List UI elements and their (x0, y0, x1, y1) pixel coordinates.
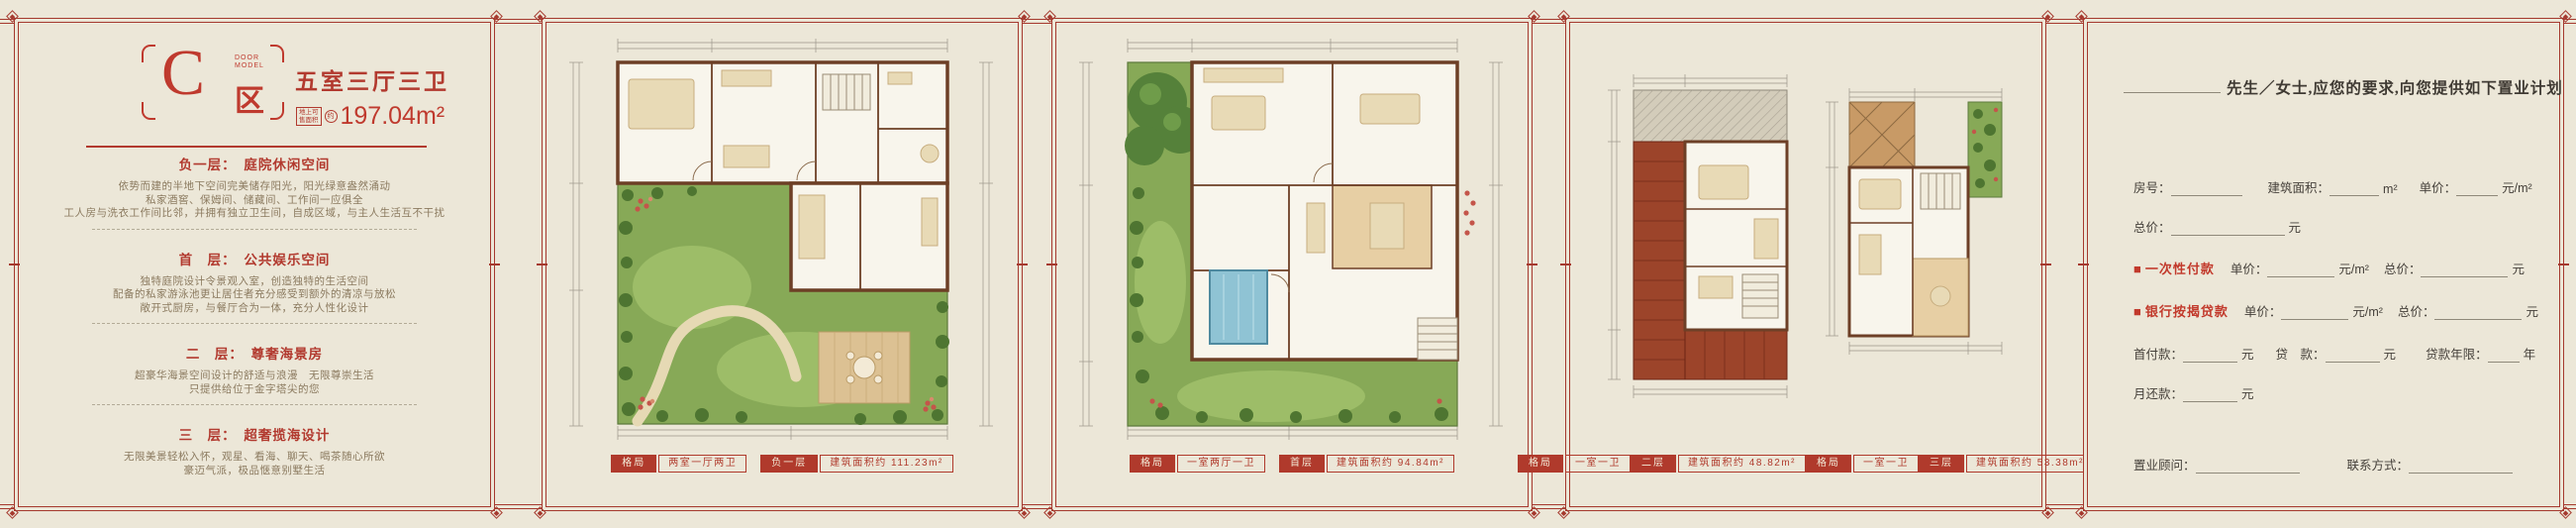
consultant-label: 置业顾问： (2133, 455, 2196, 474)
legend-key-badge: 三层 (1919, 455, 1964, 473)
corner-ornament-icon (490, 10, 503, 23)
yuan-unit: 元 (2241, 383, 2254, 402)
red-square-bullet-icon: ■ (2133, 262, 2142, 276)
zone-logo-subtext-line2: MODEL (235, 62, 264, 70)
year-unit: 年 (2524, 344, 2536, 363)
name-blank-line (2124, 77, 2221, 93)
blank-line (2281, 306, 2348, 320)
legend-value: 一室两厅一卫 (1177, 455, 1265, 473)
area-row: 地上可 售面积 约 197.04m² (296, 102, 445, 131)
legend-key-badge: 格局 (1518, 455, 1563, 473)
legend-key-badge: 二层 (1631, 455, 1676, 473)
total-price-label: 总价： (2133, 217, 2171, 236)
corner-ornament-icon (2041, 10, 2054, 23)
edge-tick-icon (2558, 264, 2569, 265)
loan-label: 贷 款： (2276, 344, 2326, 363)
zone-logo-subtext: DOOR MODEL (235, 54, 264, 70)
dashed-separator (92, 323, 418, 324)
room-no-label: 房号： (2133, 177, 2171, 196)
paragraph-line: 豪迈气派，极品惬意别墅生活 (35, 465, 474, 478)
total-price-label: 总价： (2384, 259, 2422, 277)
blank-line (2267, 264, 2334, 277)
section-heading: 首 层： 公共娱乐空间 (35, 253, 474, 267)
paragraph-line: 无限美景轻松入怀，观星、看海、聊天、喝茶随心所欲 (35, 451, 474, 465)
zone-letter: C (161, 41, 205, 106)
form-title-text: 先生／女士,应您的要求,向您提供如下置业计划 (2227, 80, 2563, 97)
section-paragraph: 依势而建的半地下空间完美储存阳光，阳光绿意盎然涌动 私家酒窖、保姆间、储藏间、工… (35, 180, 474, 221)
build-area-label: 建筑面积： (2268, 177, 2330, 196)
corner-ornament-icon (1043, 10, 1056, 23)
section-paragraph: 无限美景轻松入怀，观星、看海、聊天、喝茶随心所欲 豪迈气派，极品惬意别墅生活 (35, 451, 474, 477)
paragraph-line: 独特庭院设计令景观入室，创造独特的生活空间 (35, 275, 474, 289)
unit-price-label: 单价： (2230, 259, 2268, 277)
edge-tick-icon (2040, 264, 2051, 265)
paragraph-line: 敞开式厨房，与餐厅合为一体，充分人性化设计 (35, 302, 474, 316)
form-row-mortgage: ■银行按揭贷款 单价： 元/m² 总价： 元 (2133, 301, 2538, 320)
dashed-separator (92, 229, 418, 230)
panel-basement-plan: 格局 两室一厅两卫 负一层 建筑面积约 111.23m² (542, 18, 1023, 511)
corner-ornament-icon (534, 10, 546, 23)
corner-ornament-icon (1557, 10, 1570, 23)
area-tag: 地上可 售面积 (296, 107, 322, 126)
edge-tick-icon (1046, 264, 1057, 265)
contact-label: 联系方式： (2347, 455, 2410, 474)
total-price-label: 总价： (2398, 301, 2435, 320)
yuan-unit: 元 (2384, 344, 2397, 363)
legend-value: 一室一卫 (1853, 455, 1919, 473)
legend-key-badge: 首层 (1279, 455, 1325, 473)
first-floor-floorplan (1073, 35, 1509, 443)
second-floor-floorplan (1604, 70, 1807, 402)
paragraph-line: 只提供给位于金字塔尖的您 (35, 383, 474, 397)
blank-line (2326, 349, 2380, 363)
legend-value: 建筑面积约 111.23m² (820, 455, 953, 473)
blank-line (2183, 388, 2237, 402)
left-bracket-icon (142, 45, 155, 120)
loan-term-label: 贷款年限： (2426, 344, 2488, 363)
yuan-unit: 元 (2289, 217, 2302, 236)
area-tag-line1: 地上可 (299, 109, 319, 117)
form-row-loan: 首付款： 元 贷 款： 元 贷款年限： 年 (2133, 344, 2535, 363)
edge-tick-icon (489, 264, 500, 265)
legend-key-badge: 负一层 (760, 455, 818, 473)
corner-ornament-icon (1528, 10, 1540, 23)
panel-purchase-form: 先生／女士,应您的要求,向您提供如下置业计划 房号： 建筑面积： m² 单价： … (2083, 18, 2564, 511)
legend-value: 建筑面积约 48.82m² (1678, 455, 1806, 473)
section-heading: 负一层： 庭院休闲空间 (35, 158, 474, 172)
edge-tick-icon (1560, 264, 1571, 265)
legend-value: 一室一卫 (1565, 455, 1631, 473)
yuan-unit: 元 (2241, 344, 2254, 363)
third-floor-floorplan (1822, 84, 2020, 381)
form-title: 先生／女士,应您的要求,向您提供如下置业计划 (2124, 76, 2563, 98)
form-row-basic: 房号： 建筑面积： m² 单价： 元/m² (2133, 177, 2532, 196)
paragraph-line: 私家酒窖、保姆间、储藏间、工作间一应俱全 (35, 194, 474, 208)
legend-value: 建筑面积约 53.38m² (1966, 455, 2094, 473)
panel-upper-floor-plans: 格局 一室一卫 二层 建筑面积约 48.82m² 格局 一室一卫 三层 建筑面积… (1565, 18, 2046, 511)
zone-character: 区 (235, 76, 264, 120)
corner-ornament-icon (6, 10, 19, 23)
edge-tick-icon (9, 264, 20, 265)
edge-tick-icon (1017, 264, 1028, 265)
floor-descriptions: 负一层： 庭院休闲空间 依势而建的半地下空间完美储存阳光，阳光绿意盎然涌动 私家… (35, 158, 474, 477)
legend-value: 建筑面积约 94.84m² (1327, 455, 1454, 473)
form-row-total: 总价： 元 (2133, 217, 2301, 236)
section-basement: 负一层： 庭院休闲空间 依势而建的半地下空间完美储存阳光，阳光绿意盎然涌动 私家… (35, 158, 474, 230)
unit-price-label: 单价： (2244, 301, 2282, 320)
corner-ornament-icon (2559, 10, 2572, 23)
dashed-separator (92, 404, 418, 405)
legend-key-badge: 格局 (611, 455, 656, 473)
paragraph-line: 依势而建的半地下空间完美储存阳光，阳光绿意盎然涌动 (35, 180, 474, 194)
blank-line (2171, 222, 2285, 236)
blank-line (2456, 182, 2498, 196)
first-floor-legend: 格局 一室两厅一卫 首层 建筑面积约 94.84m² (1052, 455, 1532, 473)
section-paragraph: 超豪华海景空间设计的舒适与浪漫 无限尊崇生活 只提供给位于金字塔尖的您 (35, 370, 474, 396)
paragraph-line: 超豪华海景空间设计的舒适与浪漫 无限尊崇生活 (35, 370, 474, 383)
section-heading: 三 层： 超奢揽海设计 (35, 428, 474, 443)
corner-ornament-icon (2075, 10, 2088, 23)
zone-logo-subtext-line1: DOOR (235, 54, 264, 62)
blank-line (2488, 349, 2520, 363)
blank-line (2196, 460, 2300, 474)
paragraph-line: 工人房与洗衣工作间比邻，并拥有独立卫生间，自成区域，与主人生活互不干扰 (35, 207, 474, 221)
blank-line (2409, 460, 2513, 474)
right-bracket-icon (270, 45, 284, 120)
section-heading: 二 层： 尊奢海景房 (35, 347, 474, 362)
one-time-label: 一次性付款 (2145, 262, 2215, 276)
legend-value: 两室一厅两卫 (658, 455, 746, 473)
blank-line (2434, 306, 2522, 320)
red-square-bullet-icon: ■ (2133, 304, 2142, 319)
form-row-monthly: 月还款： 元 (2133, 383, 2254, 402)
unit-price-label: 单价： (2420, 177, 2457, 196)
yuan-per-sqm-unit: 元/m² (2338, 259, 2369, 277)
brochure-sheet: C DOOR MODEL 区 五室三厅三卫 地上可 售面积 约 197.04m²… (0, 0, 2576, 528)
form-row-consultant: 置业顾问： 联系方式： (2133, 455, 2513, 474)
mortgage-option: ■银行按揭贷款 (2133, 301, 2229, 320)
blank-line (2329, 182, 2379, 196)
corner-ornament-icon (1018, 10, 1031, 23)
basement-floorplan (563, 35, 999, 443)
blank-line (2183, 349, 2237, 363)
legend-key-badge: 格局 (1130, 455, 1175, 473)
edge-tick-icon (537, 264, 547, 265)
section-second-floor: 二 层： 尊奢海景房 超豪华海景空间设计的舒适与浪漫 无限尊崇生活 只提供给位于… (35, 347, 474, 405)
approx-badge: 约 (325, 110, 338, 123)
layout-title: 五室三厅三卫 (295, 62, 449, 96)
sqm-unit: m² (2383, 182, 2398, 196)
monthly-payment-label: 月还款： (2133, 383, 2183, 402)
area-value: 197.04m² (341, 102, 446, 131)
down-payment-label: 首付款： (2133, 344, 2183, 363)
divider-rule (86, 146, 427, 148)
one-time-option: ■一次性付款 (2133, 259, 2215, 277)
mortgage-label: 银行按揭贷款 (2145, 304, 2229, 319)
form-row-one-time: ■一次性付款 单价： 元/m² 总价： 元 (2133, 259, 2525, 277)
blank-line (2421, 264, 2508, 277)
yuan-per-sqm-unit: 元/m² (2352, 301, 2383, 320)
paragraph-line: 配备的私家游泳池更让居住者充分感受到额外的清凉与放松 (35, 288, 474, 302)
blank-line (2171, 182, 2242, 196)
section-third-floor: 三 层： 超奢揽海设计 无限美景轻松入怀，观星、看海、聊天、喝茶随心所欲 豪迈气… (35, 428, 474, 477)
yuan-unit: 元 (2512, 259, 2525, 277)
legend-key-badge: 格局 (1806, 455, 1851, 473)
yuan-unit: 元 (2526, 301, 2538, 320)
section-first-floor: 首 层： 公共娱乐空间 独特庭院设计令景观入室，创造独特的生活空间 配备的私家游… (35, 253, 474, 325)
area-tag-line2: 售面积 (299, 117, 319, 125)
edge-tick-icon (2078, 264, 2089, 265)
panel-first-floor-plan: 格局 一室两厅一卫 首层 建筑面积约 94.84m² (1051, 18, 1533, 511)
edge-tick-icon (1527, 264, 1537, 265)
yuan-per-sqm-unit: 元/m² (2502, 177, 2532, 196)
panel-c-intro: C DOOR MODEL 区 五室三厅三卫 地上可 售面积 约 197.04m²… (14, 18, 495, 511)
upper-floors-legend: 格局 一室一卫 二层 建筑面积约 48.82m² 格局 一室一卫 三层 建筑面积… (1566, 455, 2045, 473)
basement-legend: 格局 两室一厅两卫 负一层 建筑面积约 111.23m² (543, 455, 1022, 473)
section-paragraph: 独特庭院设计令景观入室，创造独特的生活空间 配备的私家游泳池更让居住者充分感受到… (35, 275, 474, 316)
